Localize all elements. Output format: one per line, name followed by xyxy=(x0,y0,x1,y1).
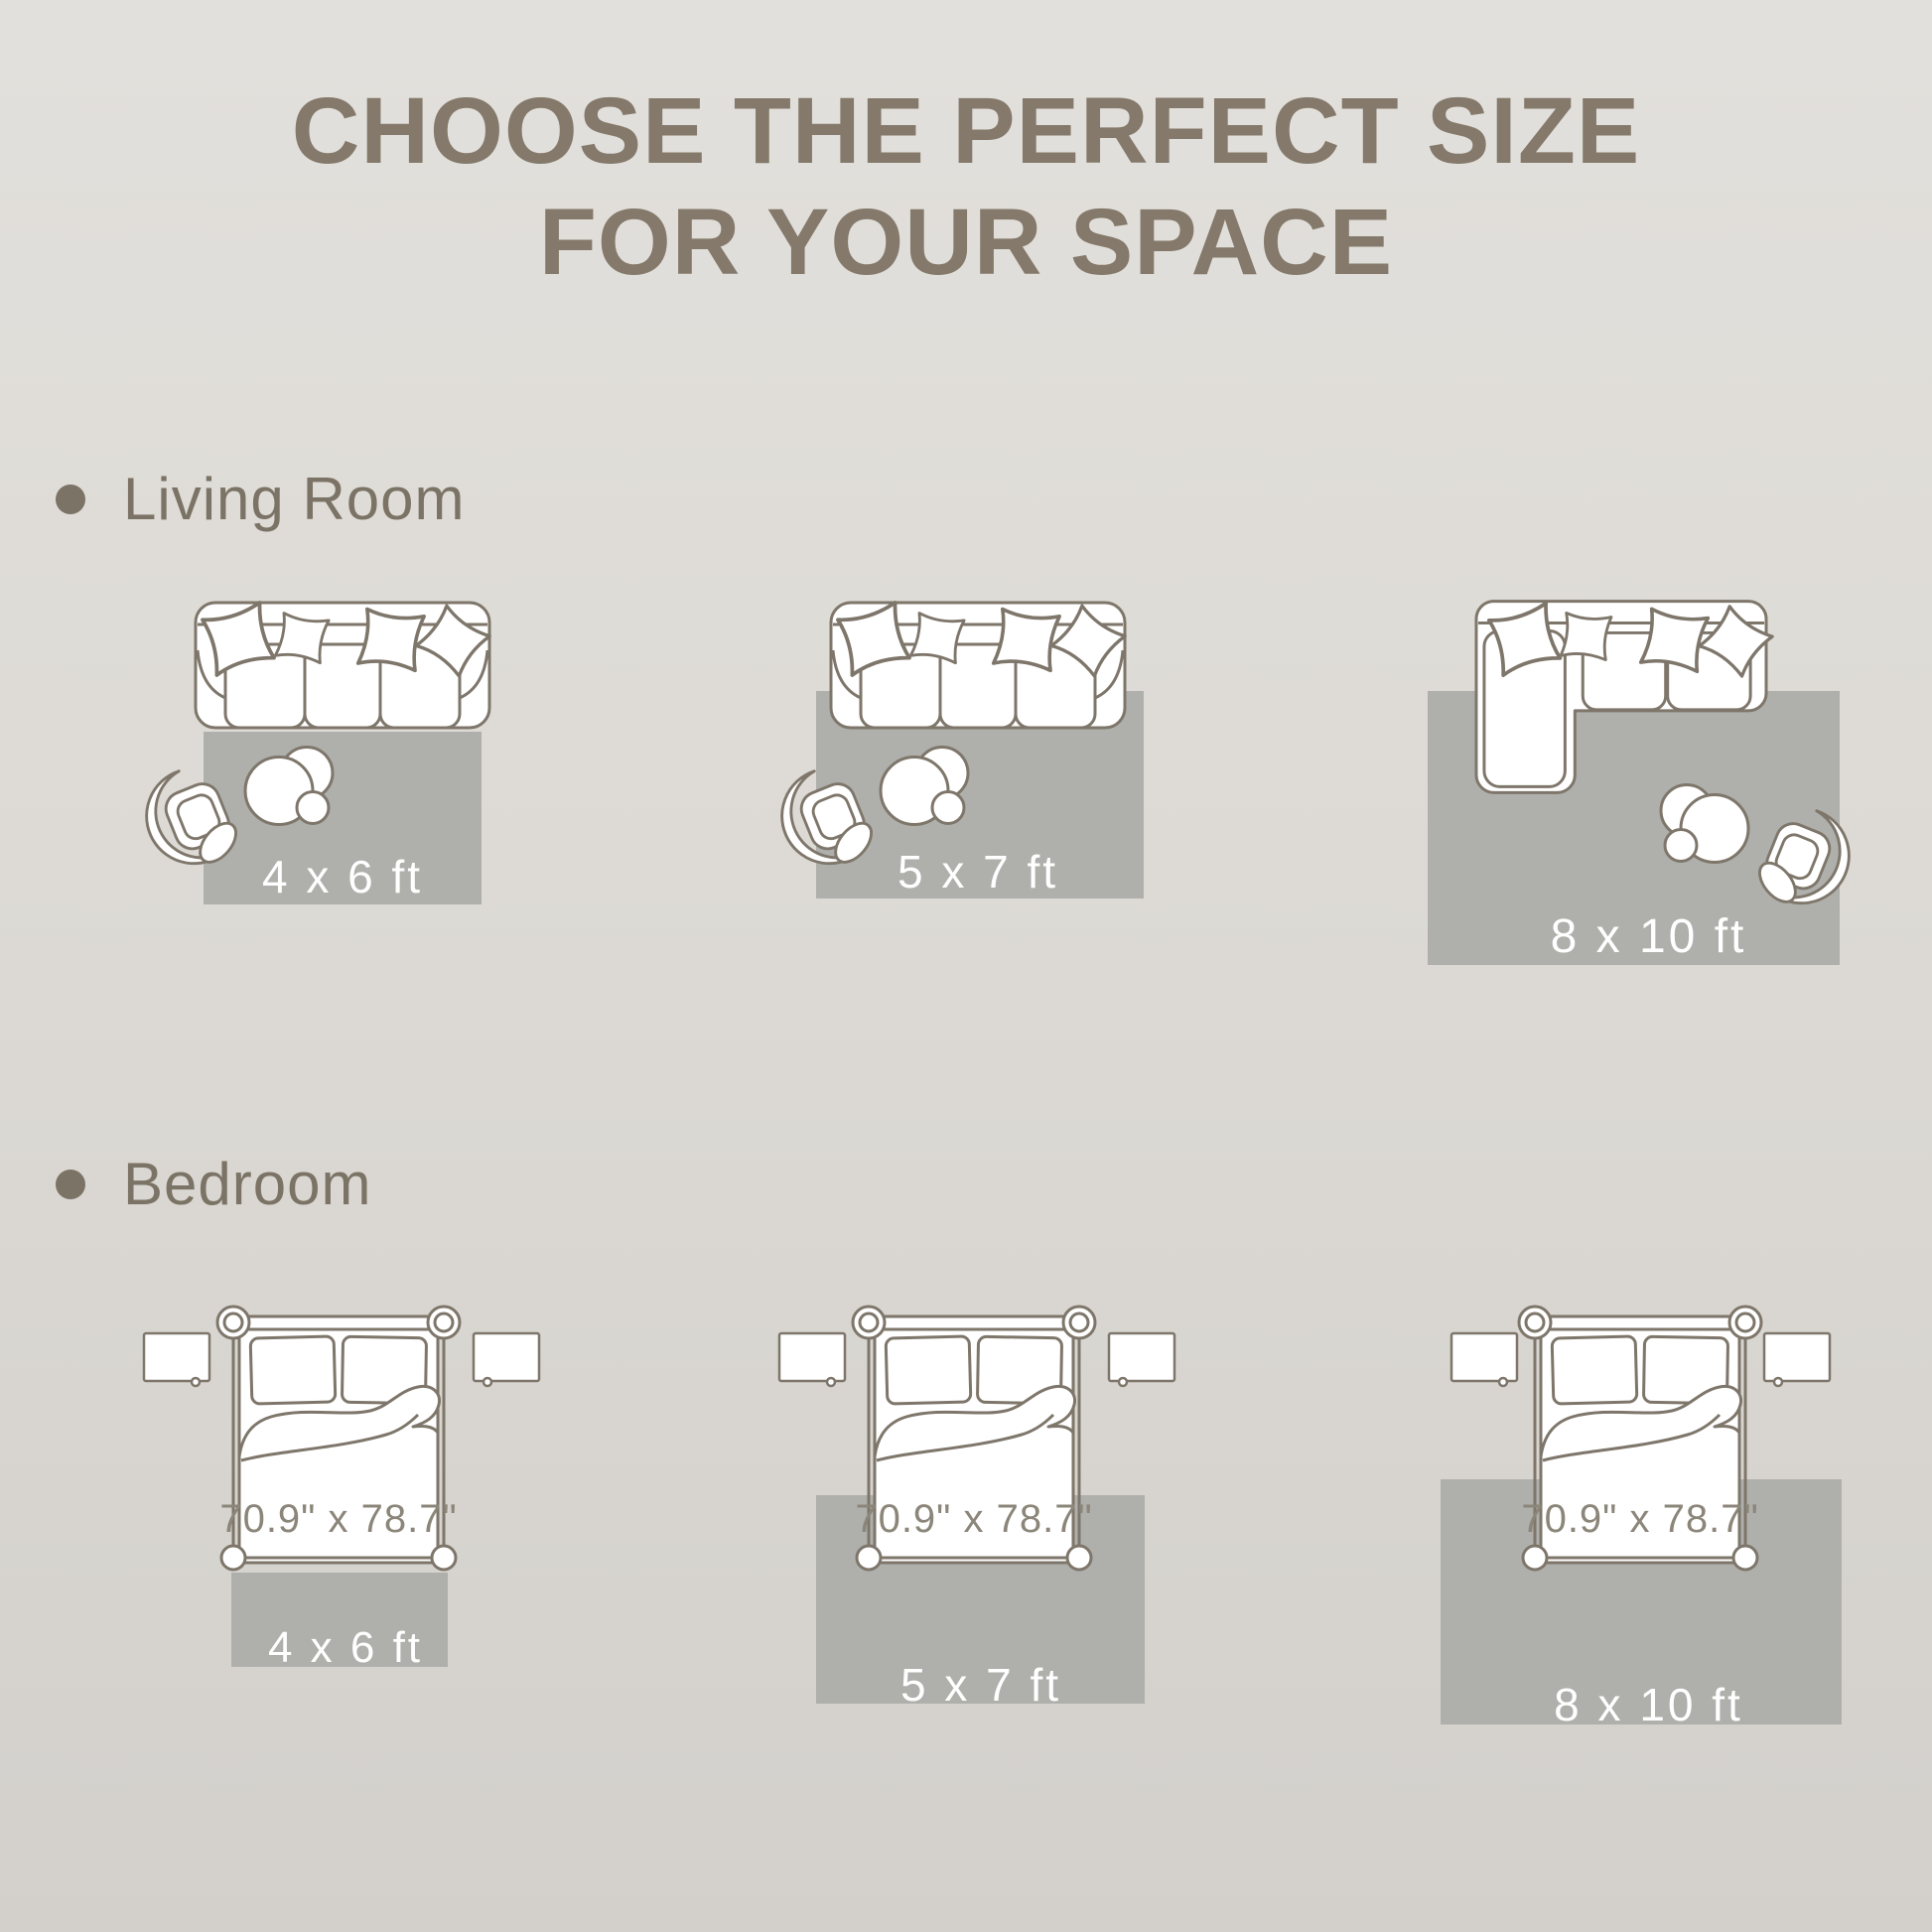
nightstand-icon xyxy=(472,1331,541,1387)
sofa-icon xyxy=(194,599,491,732)
rug-size-guide: CHOOSE THE PERFECT SIZE FOR YOUR SPACE L… xyxy=(0,0,1932,1932)
section-label-bedroom: Bedroom xyxy=(56,1150,371,1218)
rug-size-label: 4 x 6 ft xyxy=(147,1623,544,1673)
section-label-text: Living Room xyxy=(123,465,466,533)
living-room-layout-8x10: 8 x 10 ft xyxy=(1428,594,1869,991)
bed-dimensions-label: 70.9" x 78.7" xyxy=(219,1497,458,1542)
nightstand-icon xyxy=(1449,1331,1519,1387)
nightstand-icon xyxy=(142,1331,211,1387)
page-title-line2: FOR YOUR SPACE xyxy=(0,187,1932,298)
nightstand-icon xyxy=(777,1331,847,1387)
bedroom-layout-5x7: 70.9" x 78.7" 5 x 7 ft xyxy=(782,1299,1179,1755)
nightstand-icon xyxy=(1762,1331,1832,1387)
living-room-layout-5x7: 5 x 7 ft xyxy=(784,594,1172,931)
sectional-sofa-icon xyxy=(1472,599,1768,797)
rug-size-label: 8 x 10 ft xyxy=(1428,909,1869,964)
coffee-table-icon xyxy=(879,745,978,840)
bedroom-layout-8x10: 70.9" x 78.7" 8 x 10 ft xyxy=(1428,1299,1869,1755)
bullet-icon xyxy=(56,484,85,514)
section-label-living-room: Living Room xyxy=(56,465,466,533)
bed-dimensions-label: 70.9" x 78.7" xyxy=(1521,1497,1759,1542)
rug-size-label: 4 x 6 ft xyxy=(149,850,536,903)
page-title-line1: CHOOSE THE PERFECT SIZE xyxy=(0,75,1932,187)
sofa-icon xyxy=(829,599,1127,732)
coffee-table-icon xyxy=(1651,782,1750,878)
bullet-icon xyxy=(56,1170,85,1199)
coffee-table-icon xyxy=(243,745,343,840)
bedroom-layout-4x6: 70.9" x 78.7" 4 x 6 ft xyxy=(147,1299,544,1755)
bed-dimensions-label: 70.9" x 78.7" xyxy=(855,1497,1093,1542)
page-title: CHOOSE THE PERFECT SIZE FOR YOUR SPACE xyxy=(0,75,1932,298)
living-room-layout-4x6: 4 x 6 ft xyxy=(149,594,536,931)
rug-size-label: 5 x 7 ft xyxy=(784,845,1172,898)
section-label-text: Bedroom xyxy=(123,1150,371,1218)
nightstand-icon xyxy=(1107,1331,1176,1387)
rug-size-label: 5 x 7 ft xyxy=(782,1658,1179,1712)
rug-size-label: 8 x 10 ft xyxy=(1428,1678,1869,1731)
